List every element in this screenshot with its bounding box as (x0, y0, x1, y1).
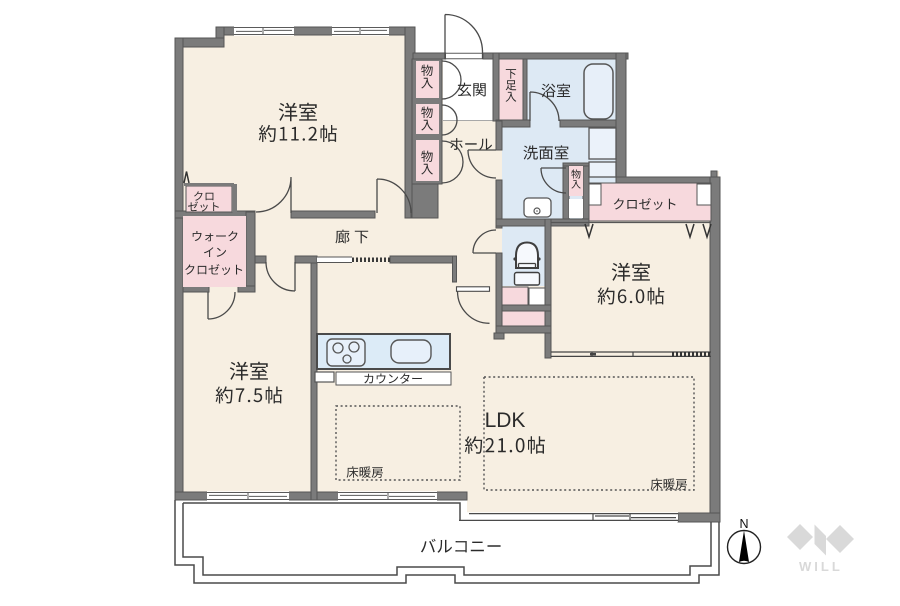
svg-text:WILL: WILL (799, 559, 843, 574)
svg-text:N: N (739, 517, 748, 531)
svg-text:LDK: LDK (485, 409, 526, 432)
